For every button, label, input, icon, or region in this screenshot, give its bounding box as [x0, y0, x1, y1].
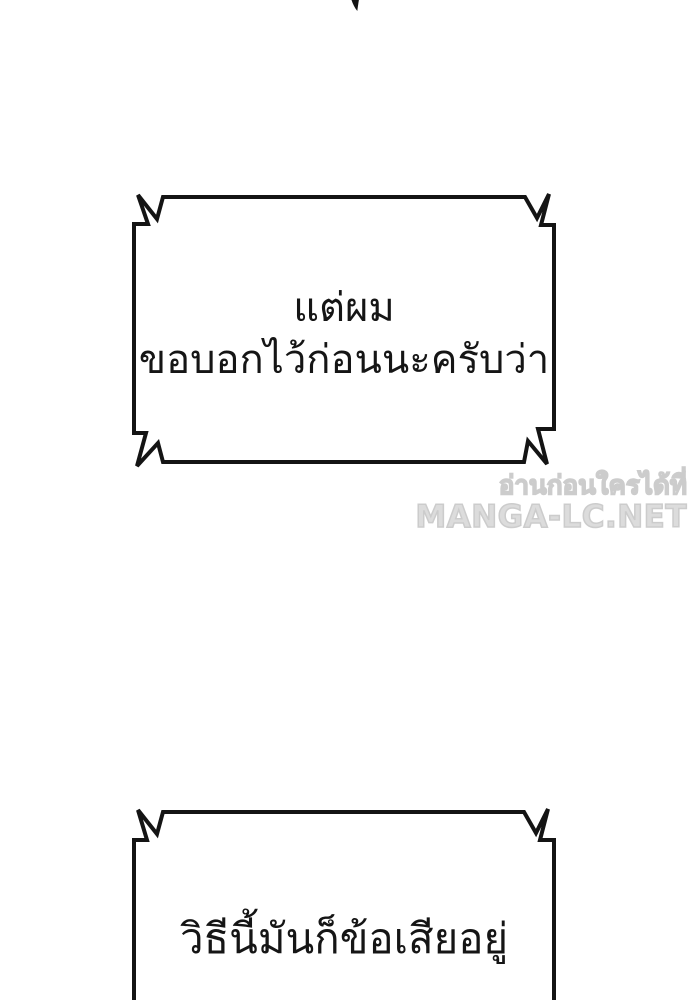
dialogue-line: แต่ผม [293, 282, 395, 334]
narration-box-2: วิธีนี้มันก็ข้อเสียอยู่ [134, 900, 554, 980]
watermark-site-name: MANGA-LC.NET [415, 502, 687, 533]
bubble-tail-icon [352, 0, 359, 11]
comic-page: แต่ผม ขอบอกไว้ก่อนนะครับว่า อ่านก่อนใครไ… [0, 0, 690, 1000]
watermark-tagline: อ่านก่อนใครได้ที่ [415, 471, 687, 502]
dialogue-line: วิธีนี้มันก็ข้อเสียอยู่ [180, 902, 508, 978]
site-watermark: อ่านก่อนใครได้ที่ MANGA-LC.NET [415, 471, 687, 533]
narration-box-1: แต่ผม ขอบอกไว้ก่อนนะครับว่า [134, 200, 554, 462]
dialogue-line: ขอบอกไว้ก่อนนะครับว่า [139, 334, 550, 386]
